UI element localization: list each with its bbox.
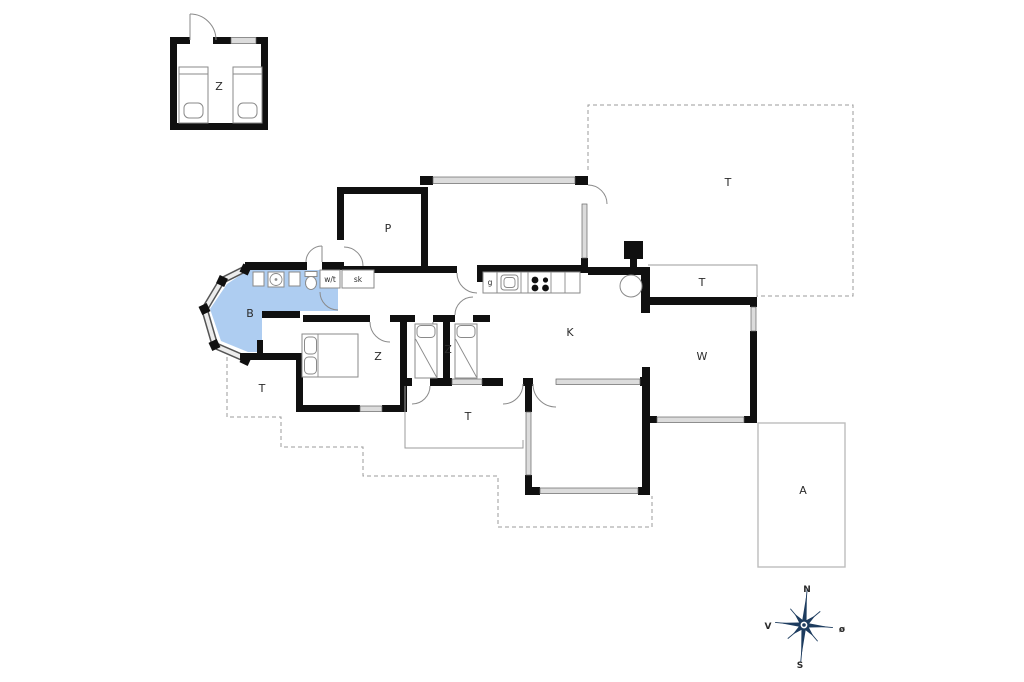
floor-plan: Z <box>0 0 1024 682</box>
door-arc <box>455 297 473 315</box>
room-label-bathroom: B <box>246 307 254 320</box>
door-arc <box>370 322 390 342</box>
kitchen-sink-icon <box>501 275 518 290</box>
window <box>433 177 575 184</box>
window <box>751 307 756 331</box>
window <box>360 406 382 412</box>
chimney-icon <box>624 241 643 268</box>
window <box>540 488 638 494</box>
window <box>556 379 640 385</box>
room-label-bedroom-twin: Z <box>444 343 452 356</box>
label-hall: g <box>488 278 493 287</box>
label-terrace-covered: T <box>698 276 706 289</box>
door-arc <box>457 273 477 293</box>
cabinet-icon <box>289 272 300 286</box>
annex-window <box>231 38 256 44</box>
entrance-door-arc <box>306 246 322 262</box>
label-terrace-ne: T <box>724 176 732 189</box>
wood-stove-icon <box>620 275 642 297</box>
label-annex-a: A <box>799 484 807 497</box>
label-terrace-sw: T <box>258 382 266 395</box>
annex-building: Z <box>170 14 268 130</box>
compass-rose: N S V ø <box>765 585 846 671</box>
sink-icon <box>268 272 284 287</box>
single-bed-icon <box>455 324 477 378</box>
door-arc <box>412 386 430 404</box>
door-arc <box>503 384 523 404</box>
double-bed-icon <box>302 334 358 377</box>
compass-west: V <box>765 622 772 632</box>
bed-icon <box>233 67 262 123</box>
room-label-living: W <box>697 350 708 363</box>
toilet-icon <box>305 272 317 290</box>
door-arc <box>588 185 607 204</box>
window <box>657 417 744 423</box>
label-terrace-south: T <box>464 410 472 423</box>
kitchen-counter <box>483 272 580 293</box>
room-label-annex-bedroom: Z <box>215 80 223 93</box>
door-arc <box>344 247 363 266</box>
label-closet: sk <box>354 275 363 284</box>
single-bed-icon <box>415 324 437 378</box>
label-utility: w/t <box>324 275 336 284</box>
window <box>452 379 482 385</box>
compass-south: S <box>797 661 803 671</box>
room-label-kitchen: K <box>566 326 574 339</box>
cabinet-icon <box>253 272 264 286</box>
annex-door-arc <box>190 14 216 40</box>
compass-north: N <box>803 585 811 595</box>
compass-east: ø <box>839 625 845 635</box>
bed-icon <box>179 67 208 123</box>
window <box>582 204 587 258</box>
room-label-bedroom-double: Z <box>374 350 382 363</box>
room-label-p: P <box>385 222 392 235</box>
door-arc <box>533 384 556 407</box>
window <box>526 412 531 475</box>
